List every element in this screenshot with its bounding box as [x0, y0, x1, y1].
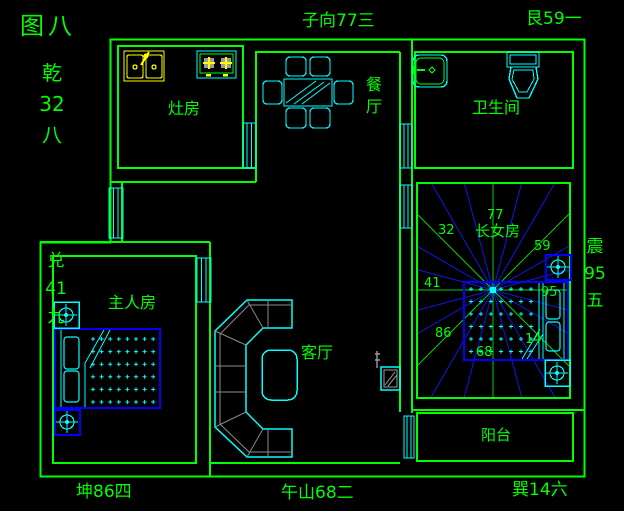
window — [404, 416, 414, 458]
compass-label-e: 震 95 五 — [580, 234, 610, 315]
room-label-balcony: 阳台 — [481, 428, 511, 443]
tv — [375, 351, 400, 390]
figure-title: 图八 — [20, 14, 76, 38]
gas-stove — [197, 51, 236, 78]
toilet — [507, 52, 539, 98]
window — [243, 123, 256, 168]
room-label-bathroom: 卫生间 — [472, 100, 520, 116]
tv-stand-icon — [375, 351, 380, 368]
window — [400, 124, 412, 168]
room-label-master-bedroom: 主人房 — [108, 295, 156, 311]
compass-label-ne: 艮59一 — [526, 11, 582, 28]
star-number-nw: 32 — [438, 224, 455, 237]
compass-label-w: 兑 41 九 — [42, 247, 70, 331]
star-number-sw: 86 — [435, 327, 452, 340]
window — [400, 185, 412, 228]
dining-chair — [310, 57, 330, 76]
kitchen-sink — [124, 51, 164, 81]
compass-label-se: 巽14六 — [512, 482, 568, 499]
compass-label-sw: 坤86四 — [76, 484, 132, 501]
dining-chair — [286, 108, 306, 128]
dining-chair — [263, 81, 282, 104]
star-number-ne: 59 — [534, 240, 551, 253]
dining-table — [284, 79, 332, 106]
bathroom-sink — [413, 55, 447, 87]
room-label-living-room: 客厅 — [301, 345, 333, 361]
dining-chair — [310, 108, 330, 128]
floor-plan-canvas[interactable]: 图八 乾 32 八 子向77三 艮59一 兑 41 九 震 95 五 坤86四 … — [0, 0, 624, 511]
dining-chairs — [263, 57, 353, 128]
room-label-kitchen: 灶房 — [168, 101, 200, 117]
nightstand-lamp — [546, 255, 571, 280]
room-label-daughter-room: 长女房 — [475, 224, 520, 239]
compass-label-nw: 乾 32 八 — [36, 58, 68, 151]
sofa — [215, 300, 292, 457]
dining-chair — [334, 81, 353, 104]
compass-label-n: 子向77三 — [302, 13, 375, 30]
star-number-n: 77 — [487, 209, 504, 222]
master-bed — [55, 329, 160, 408]
dining-chair — [286, 57, 306, 76]
compass-label-s: 午山68二 — [281, 485, 354, 502]
star-number-se: 14 — [525, 333, 542, 346]
room-label-dining: 餐 厅 — [365, 74, 383, 118]
star-number-s: 68 — [476, 346, 493, 359]
nightstand-lamp — [55, 410, 80, 435]
star-number-e: 95 — [541, 286, 558, 299]
window — [197, 258, 211, 302]
coffee-table — [262, 350, 297, 400]
star-number-w: 41 — [424, 277, 441, 290]
